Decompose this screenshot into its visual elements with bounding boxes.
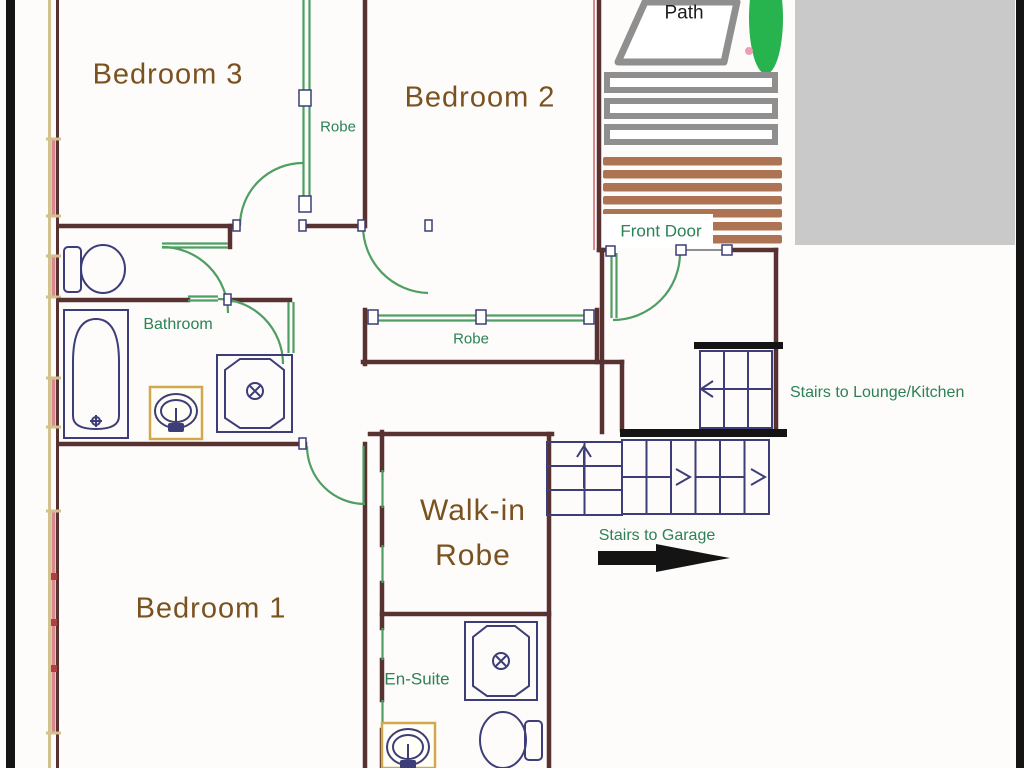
ensuite-sink-icon bbox=[382, 723, 435, 768]
floor-plan-page: Bedroom 3 Robe Bedroom 2 Path Front Door… bbox=[0, 0, 1024, 768]
toilet-icon bbox=[64, 245, 125, 293]
room-label-robe-middle: Robe bbox=[453, 332, 489, 347]
room-label-walk-in-robe-line2: Robe bbox=[435, 541, 511, 571]
room-label-walk-in-robe-line1: Walk-in bbox=[420, 496, 526, 526]
bathtub-icon bbox=[64, 310, 128, 438]
driveway-block bbox=[795, 0, 1015, 245]
garden-dot bbox=[745, 47, 753, 55]
room-label-robe-top: Robe bbox=[320, 120, 356, 135]
garden-bush bbox=[749, 0, 783, 74]
west-exterior-wall bbox=[46, 0, 61, 768]
room-label-bedroom-2: Bedroom 2 bbox=[405, 84, 556, 113]
front-steps bbox=[607, 75, 775, 142]
room-label-en-suite: En-Suite bbox=[384, 671, 449, 688]
stairs-garage-grid bbox=[547, 429, 787, 515]
label-stairs-to-lounge-kitchen: Stairs to Lounge/Kitchen bbox=[790, 385, 964, 401]
label-stairs-to-garage: Stairs to Garage bbox=[599, 528, 716, 544]
ensuite-shower-icon bbox=[465, 622, 537, 700]
room-label-bedroom-3: Bedroom 3 bbox=[93, 61, 244, 90]
ensuite-toilet-icon bbox=[480, 712, 542, 768]
room-label-bedroom-1: Bedroom 1 bbox=[136, 595, 287, 624]
bathroom-sink-icon bbox=[150, 387, 202, 439]
label-front-door: Front Door bbox=[620, 223, 701, 240]
garage-direction-arrow bbox=[598, 544, 730, 572]
door-jambs bbox=[224, 90, 615, 449]
label-path: Path bbox=[664, 4, 703, 23]
stairs-lounge-grid bbox=[694, 342, 783, 428]
bathroom-shower-icon bbox=[217, 355, 292, 432]
room-label-bathroom: Bathroom bbox=[143, 317, 212, 333]
